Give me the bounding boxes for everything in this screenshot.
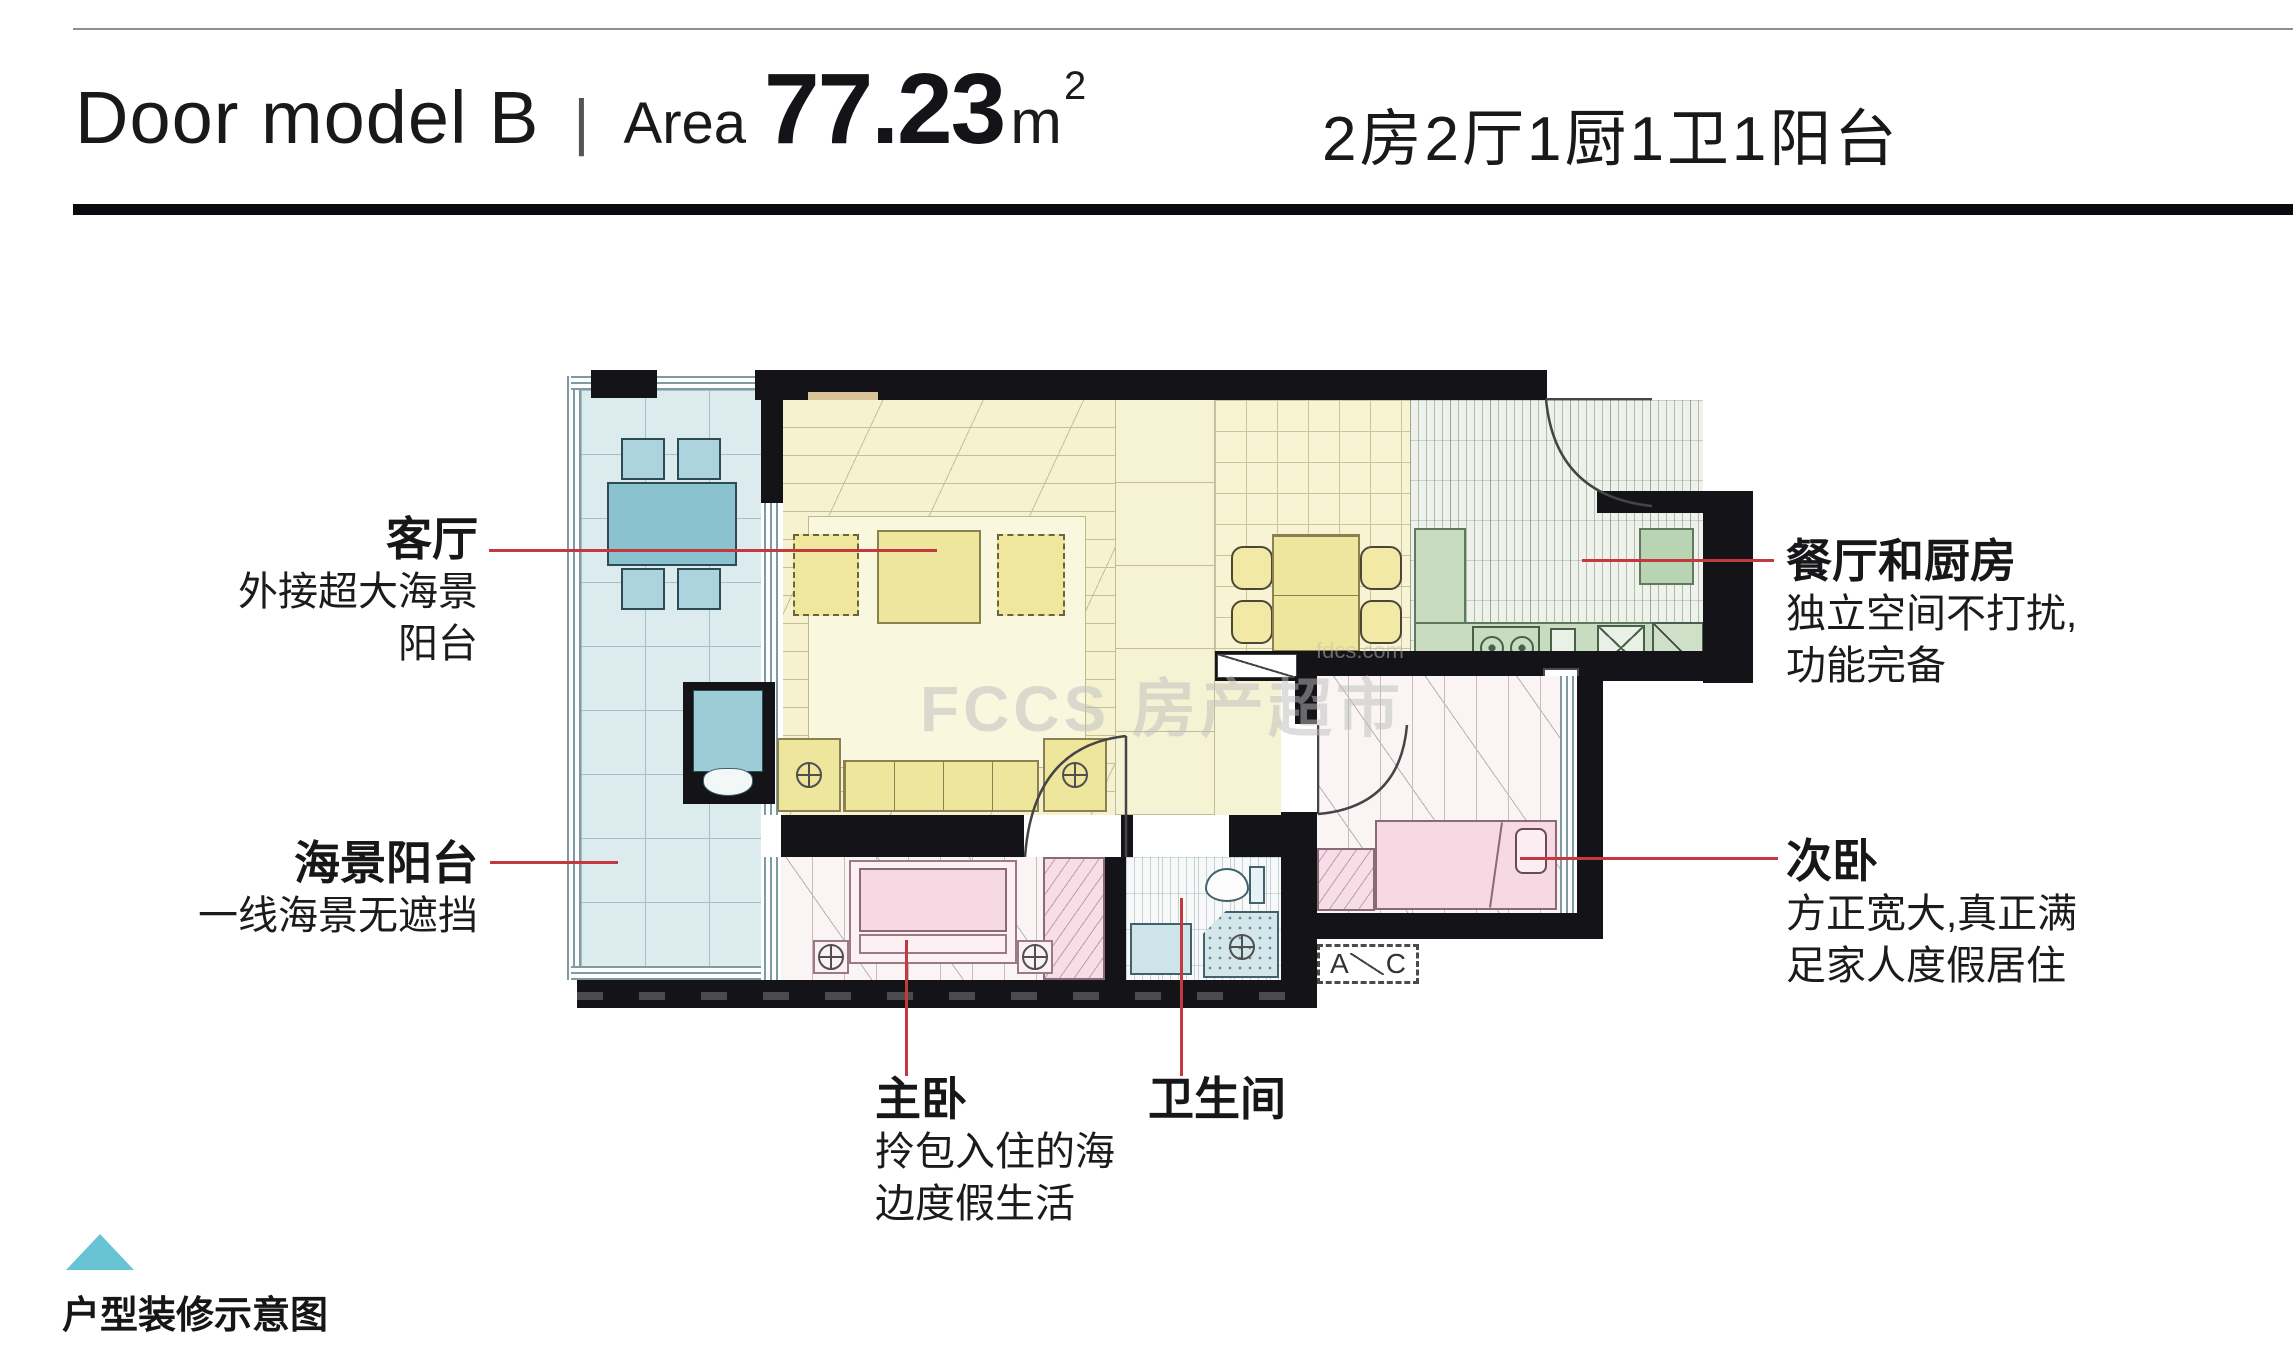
armchair-right	[997, 534, 1065, 616]
label-dining-kitchen-title: 餐厅和厨房	[1786, 534, 2206, 588]
dining-chair	[1231, 546, 1273, 590]
dining-table	[1272, 534, 1360, 652]
master-bed-headboard	[859, 934, 1007, 954]
second-wardrobe	[1317, 848, 1375, 911]
master-door-arc	[1024, 735, 1128, 859]
wall	[761, 370, 783, 503]
label-master-bedroom-line1: 拎包入住的海	[875, 1126, 1205, 1178]
watermark-logo: FCCS	[920, 673, 1110, 745]
wall-secondbed-bottom	[1317, 913, 1579, 939]
watermark-domain: fdcs.com	[920, 638, 1404, 664]
utility-closet	[693, 690, 763, 772]
balcony-window-bottom	[571, 966, 761, 980]
label-master-bedroom-line2: 边度假生活	[875, 1178, 1205, 1230]
lamp-icon	[796, 762, 822, 788]
lamp-icon	[818, 944, 844, 970]
master-bed	[859, 868, 1007, 932]
watermark: fdcs.com FCCS 房产超市	[920, 638, 1404, 750]
wall-bottom	[577, 980, 1317, 1008]
label-sea-balcony: 海景阳台 一线海景无遮挡	[150, 836, 478, 942]
label-second-bedroom-line2: 足家人度假居住	[1786, 940, 2206, 992]
ac-diagonal	[1350, 953, 1384, 975]
wall-bedroom-band	[781, 815, 1024, 857]
layout-summary: 2房2厅1厨1卫1阳台	[1322, 88, 1899, 178]
label-bathroom-title: 卫生间	[1148, 1072, 1408, 1126]
armchair-left	[793, 534, 859, 616]
balcony-floor	[581, 390, 761, 966]
washer-icon	[703, 768, 753, 796]
leader-sea-balcony	[490, 861, 618, 864]
header-divider-bar	[73, 204, 2293, 215]
area-sup: 2	[1064, 64, 1086, 109]
ac-letter-c: C	[1386, 948, 1406, 980]
leader-bathroom	[1180, 898, 1183, 1076]
balcony-chair	[677, 568, 721, 610]
leader-master-bedroom	[905, 940, 908, 1076]
balcony-window-left	[567, 376, 581, 980]
wall-secondbed-right	[1577, 676, 1603, 939]
wall-bed-bath	[1105, 857, 1126, 980]
corridor-floor	[1115, 400, 1215, 815]
second-bedroom-window	[1560, 676, 1577, 913]
label-sea-balcony-line1: 一线海景无遮挡	[150, 890, 478, 942]
pillow	[1515, 828, 1547, 874]
coffee-table	[877, 530, 981, 624]
label-sea-balcony-title: 海景阳台	[150, 836, 478, 890]
label-second-bedroom-line1: 方正宽大,真正满	[1786, 888, 2206, 940]
wall-bath-right	[1281, 812, 1317, 982]
wall	[591, 370, 657, 398]
fridge	[1639, 528, 1694, 585]
balcony-chair	[621, 438, 665, 480]
lamp-icon	[1022, 944, 1048, 970]
label-living-line1: 外接超大海景	[150, 566, 478, 618]
shower-drain-icon	[1229, 934, 1255, 960]
label-dining-kitchen-line1: 独立空间不打扰,	[1786, 588, 2206, 640]
triangle-icon	[66, 1234, 134, 1270]
toilet-icon	[1205, 868, 1249, 902]
label-dining-kitchen: 餐厅和厨房 独立空间不打扰, 功能完备	[1786, 534, 2206, 692]
label-dining-kitchen-line2: 功能完备	[1786, 640, 2206, 692]
balcony-chair	[621, 568, 665, 610]
dining-chair	[1360, 546, 1402, 590]
leader-dining-kitchen	[1582, 559, 1774, 562]
toilet-tank	[1249, 866, 1265, 904]
ac-letter-a: A	[1330, 948, 1349, 980]
leader-living	[489, 549, 937, 552]
area-unit: m	[1010, 87, 1062, 158]
header-left: Door model B | Area 77.23 m 2	[75, 52, 1084, 167]
balcony-chair	[677, 438, 721, 480]
label-living: 客厅 外接超大海景 阳台	[150, 512, 478, 670]
balcony-table	[607, 482, 737, 566]
floorplan-page: Door model B | Area 77.23 m 2 2房2厅1厨1卫1阳…	[0, 0, 2293, 1371]
page-title: Door model B	[75, 75, 539, 160]
bedroom-balcony-window	[764, 857, 778, 980]
label-second-bedroom-title: 次卧	[1786, 834, 2206, 888]
title-divider: |	[539, 87, 623, 158]
ac-platform: A C	[1317, 944, 1419, 984]
header-top-rule	[73, 28, 2293, 30]
area-label: Area	[624, 90, 747, 157]
leader-second-bedroom	[1520, 857, 1778, 860]
watermark-brand: 房产超市	[1132, 673, 1404, 745]
label-second-bedroom: 次卧 方正宽大,真正满 足家人度假居住	[1786, 834, 2206, 992]
entry-door-arc	[1545, 398, 1653, 508]
footer-caption: 户型装修示意图	[62, 1284, 328, 1339]
sofa	[843, 760, 1039, 812]
label-bathroom: 卫生间	[1148, 1072, 1408, 1126]
label-living-title: 客厅	[150, 512, 478, 566]
area-value: 77.23	[764, 52, 1004, 167]
label-living-line2: 阳台	[150, 618, 478, 670]
